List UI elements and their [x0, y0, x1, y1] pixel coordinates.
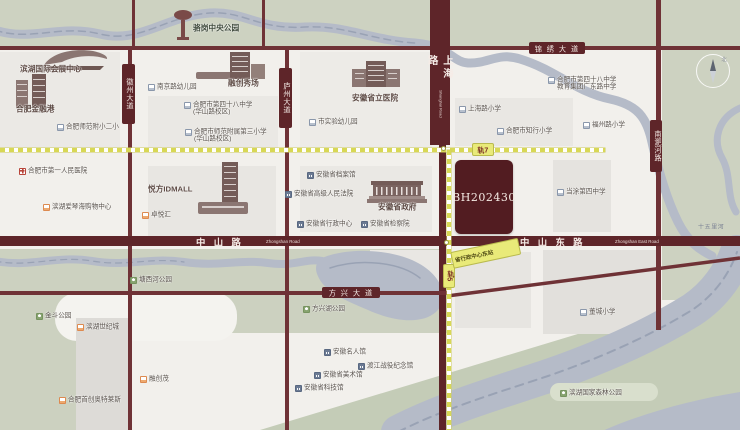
poi-first-peoples-hospital: 合肥市第一人民医院: [19, 167, 118, 178]
poi-label: 合肥金融港: [16, 106, 55, 114]
school-icon: [309, 119, 316, 126]
poi-label: 卓悦汇: [151, 211, 171, 218]
poi-dangtu-no4-middle: 当涂第四中学: [557, 188, 626, 199]
park-icon: [303, 306, 310, 313]
poi-label: 安徽省行政中心: [306, 220, 352, 227]
poi-label: 悦方IDMALL: [148, 186, 192, 194]
poi-no48-middle-huashan: 合肥市第四十八中学(华山路校区): [184, 101, 283, 123]
poi-label: 安徽省检察院: [370, 220, 410, 227]
park-icon: [560, 390, 567, 397]
poi-luogang-central-park: 骆岗中央公园: [193, 25, 259, 36]
poi-label: 合肥市第四十八中学教育集团广东路中学: [557, 76, 616, 91]
mall-icon: [142, 212, 149, 219]
poi-label: 方兴湖公园: [312, 305, 345, 312]
poi-anhui-art-museum: 安徽省美术馆: [314, 371, 383, 382]
poi-label: 滨湖爱琴海购物中心: [52, 203, 111, 210]
poi-label: 市实验幼儿园: [318, 118, 358, 125]
poi-rongchuang-mao: 融创茂: [140, 375, 179, 386]
poi-dongcheng-primary: 董城小学: [580, 308, 629, 319]
school-icon: [557, 189, 564, 196]
poi-label: 当涂第四中学: [566, 188, 606, 195]
poi-hefei-financial-harbor: 合肥金融港: [16, 106, 71, 117]
school-icon: [497, 128, 504, 135]
poi-label: 福州路小学: [592, 121, 625, 128]
gov-icon: [297, 221, 304, 228]
poi-label: 合肥市知行小学: [506, 127, 552, 134]
poi-label: 上海路小学: [468, 105, 501, 112]
school-icon: [148, 84, 155, 91]
poi-idmall: 悦方IDMALL: [148, 186, 212, 197]
poi-anhui-celebrities-museum: 安徽名人馆: [324, 348, 383, 359]
poi-jindou-park: 金斗公园: [36, 312, 85, 323]
poi-label: 骆岗中央公园: [193, 25, 239, 33]
mall-icon: [59, 397, 66, 404]
poi-label: 合肥市第四十八中学(华山路校区): [193, 101, 252, 116]
poi-tangxihe-park: 塘西河公园: [130, 276, 189, 287]
school-icon: [548, 77, 555, 84]
poi-shouchuang-outlets: 合肥首创奥特莱斯: [59, 396, 148, 407]
poi-label: 安徽省政府: [378, 204, 417, 212]
gov-icon: [307, 172, 314, 179]
gov-icon: [314, 372, 321, 379]
school-icon: [459, 106, 466, 113]
mall-icon: [140, 376, 147, 383]
poi-label: 合肥首创奥特莱斯: [68, 396, 121, 403]
poi-fuzhou-rd-primary: 福州路小学: [583, 121, 642, 132]
mall-icon: [77, 324, 84, 331]
poi-fangxinghu-park: 方兴湖公园: [303, 305, 362, 316]
poi-label: 金斗公园: [45, 312, 71, 319]
poi-binhu-convention-center: 滨湖国际会展中心: [20, 66, 108, 77]
poi-zhixing-primary: 合肥市知行小学: [497, 127, 576, 138]
poi-label: 安徽省美术馆: [323, 371, 363, 378]
gov-icon: [358, 363, 365, 370]
poi-label: 董城小学: [589, 308, 615, 315]
poi-label: 南京路幼儿园: [157, 83, 197, 90]
location-map: 轨7 轨5 省行政中心东站 锦 绣 大 道 中 山 路 Zhongshan Ro…: [0, 0, 740, 430]
school-icon: [185, 129, 192, 136]
poi-label: 合肥市师范附属第三小学(华山路校区): [194, 128, 267, 143]
poi-label: 滨湖国际会展中心: [20, 66, 82, 74]
school-icon: [583, 122, 590, 129]
poi-provincial-procuratorate: 安徽省检察院: [361, 220, 430, 231]
poi-shiyan-kindergarten: 市实验幼儿园: [309, 118, 378, 129]
poi-label: 合肥师范附小二小: [66, 123, 119, 130]
poi-label: 融创秀场: [228, 80, 259, 88]
poi-no48-middle-guangdong: 合肥市第四十八中学教育集团广东路中学: [548, 76, 647, 98]
poi-label: 滨湖国家森林公园: [569, 389, 622, 396]
poi-aiqinhai-mall: 滨湖爱琴海购物中心: [43, 203, 142, 214]
mall-icon: [43, 204, 50, 211]
school-icon: [57, 124, 64, 131]
poi-label: 合肥市第一人民医院: [28, 167, 87, 174]
poi-provincial-archives: 安徽省档案馆: [307, 171, 376, 182]
poi-label: 安徽省档案馆: [316, 171, 356, 178]
poi-shifan-no3-primary: 合肥市师范附属第三小学(华山路校区): [185, 128, 304, 150]
poi-label: 塘西河公园: [139, 276, 172, 283]
poi-nanjing-rd-kindergarten: 南京路幼儿园: [148, 83, 217, 94]
gov-icon: [285, 191, 292, 198]
poi-provincial-government: 安徽省政府: [378, 204, 433, 215]
poi-binhu-forest-park: 滨湖国家森林公园: [560, 389, 649, 400]
poi-label: 渡江战役纪念馆: [367, 362, 413, 369]
poi-label: 安徽省立医院: [352, 95, 398, 103]
poi-label: 安徽省高级人民法院: [294, 190, 353, 197]
poi-anhui-sci-tech-museum: 安徽省科技馆: [295, 384, 364, 395]
hospital-icon: [19, 168, 26, 175]
gov-icon: [295, 385, 302, 392]
poi-rongchuang-showplace: 融创秀场: [228, 80, 272, 91]
poi-label: 安徽名人馆: [333, 348, 366, 355]
poi-binhu-century-city: 滨湖世纪城: [77, 323, 136, 334]
poi-label: 安徽省科技馆: [304, 384, 344, 391]
park-icon: [130, 277, 137, 284]
park-icon: [36, 313, 43, 320]
gov-icon: [324, 349, 331, 356]
poi-shanghai-rd-primary: 上海路小学: [459, 105, 518, 116]
gov-icon: [361, 221, 368, 228]
poi-layer: 骆岗中央公园滨湖国际会展中心合肥金融港合肥师范附小二小南京路幼儿园合肥市第四十八…: [0, 0, 740, 430]
poi-provincial-high-court: 安徽省高级人民法院: [285, 190, 384, 201]
poi-zhuoyuehui: 卓悦汇: [142, 211, 181, 222]
poi-anhui-provincial-hospital: 安徽省立医院: [352, 95, 418, 106]
poi-label: 滨湖世纪城: [86, 323, 119, 330]
school-icon: [580, 309, 587, 316]
school-icon: [184, 102, 191, 109]
poi-shifan-fuxiao-no2: 合肥师范附小二小: [57, 123, 146, 134]
poi-label: 融创茂: [149, 375, 169, 382]
